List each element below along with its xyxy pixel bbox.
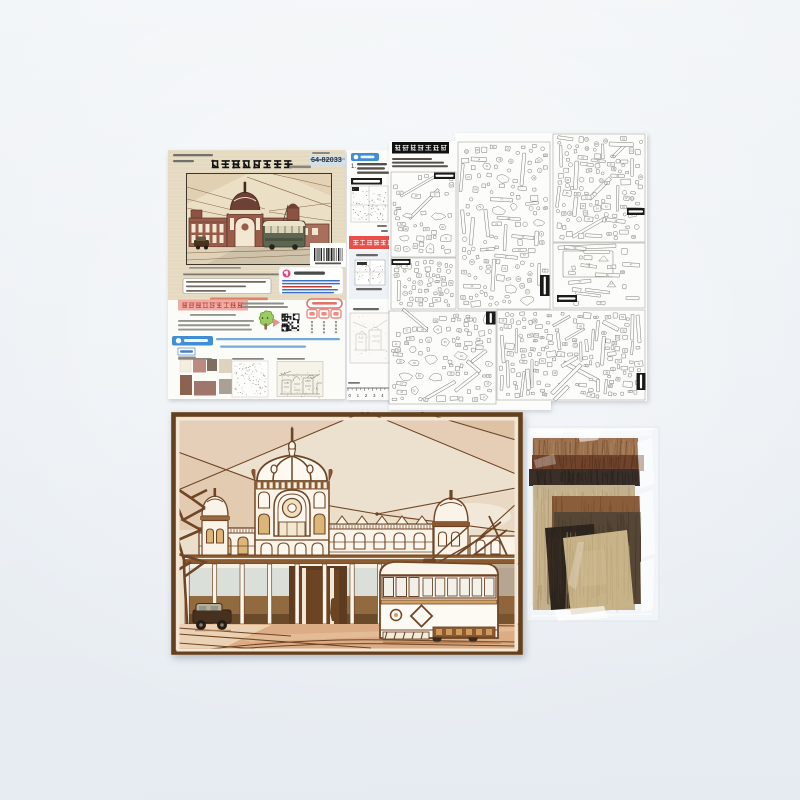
svg-text:1.: 1. xyxy=(351,164,356,170)
svg-text:0: 0 xyxy=(349,393,352,398)
svg-text:3: 3 xyxy=(373,393,376,398)
svg-text:1: 1 xyxy=(357,393,360,398)
svg-text:2: 2 xyxy=(365,393,368,398)
